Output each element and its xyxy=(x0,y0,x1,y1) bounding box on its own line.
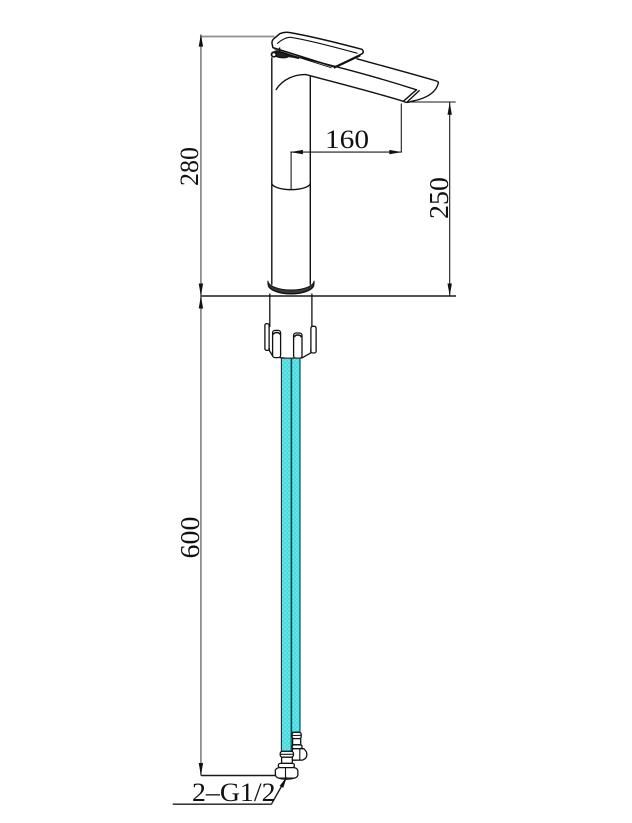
svg-text:160: 160 xyxy=(325,125,369,154)
svg-text:250: 250 xyxy=(424,177,454,219)
svg-text:280: 280 xyxy=(175,147,204,186)
svg-text:600: 600 xyxy=(175,517,205,559)
svg-text:2–G1/2: 2–G1/2 xyxy=(192,778,276,807)
